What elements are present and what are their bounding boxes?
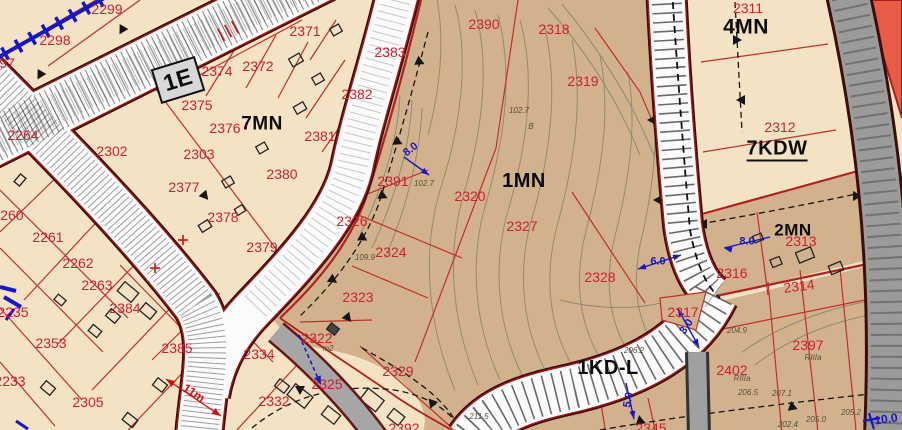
zone-label-0-1e: 1E xyxy=(161,65,196,96)
zone-label-4-7kdw: 7KDW xyxy=(747,139,808,162)
parcel-number-17-2379: 2379 xyxy=(246,240,277,254)
parcel-number-8-2374: 2374 xyxy=(201,64,232,78)
elevation-label-6-207-1: 207.1 xyxy=(772,390,792,398)
parcel-number-38-2326: 2326 xyxy=(336,214,367,228)
elevation-label-14-m2: m2 xyxy=(322,345,333,353)
blue-dimension-2-6-0: 6.0 xyxy=(650,257,665,268)
parcel-number-15-2377: 2377 xyxy=(168,180,199,194)
parcel-number-32-2385: 2385 xyxy=(161,341,192,355)
parcel-number-9-2383: 2383 xyxy=(374,45,405,59)
parcel-number-28-2353: 2353 xyxy=(35,336,66,350)
parcel-number-23-2260: 2260 xyxy=(0,208,24,222)
parcel-number-18-2390: 2390 xyxy=(468,17,499,31)
parcel-number-44-2325: 2325 xyxy=(311,377,342,391)
red-dimension-0-11m: 11m xyxy=(181,382,207,405)
zone-label-3-4mn: 4MN xyxy=(723,17,769,38)
elevation-label-4-211-5: 211.5 xyxy=(469,413,488,421)
parcel-number-37-2320: 2320 xyxy=(454,189,485,203)
parcel-number-40-2324: 2324 xyxy=(375,245,406,259)
parcel-number-34-2332: 2332 xyxy=(258,394,289,408)
blue-dimension-0-8-0: 8.0 xyxy=(402,141,421,159)
map-labels-layer: 1E7MN1MN4MN7KDW2MN1KD-L97229922982264230… xyxy=(0,0,902,430)
zoning-map: 1E7MN1MN4MN7KDW2MN1KD-L97229922982264230… xyxy=(0,0,902,430)
elevation-label-9-202-4: 202.4 xyxy=(778,421,798,429)
parcel-number-27-2235: 2235 xyxy=(0,305,29,319)
zone-label-2-1mn: 1MN xyxy=(502,171,546,191)
parcel-number-25-2262: 2262 xyxy=(62,256,93,270)
parcel-number-46-2317: 2317 xyxy=(667,305,698,319)
elevation-label-10-206-2: 206.2 xyxy=(624,347,644,355)
elevation-label-12-riiia: RIIIa xyxy=(734,375,751,383)
elevation-label-2-b: B xyxy=(528,123,533,131)
parcel-number-45-2329: 2329 xyxy=(382,364,413,378)
parcel-number-33-2334: 2334 xyxy=(243,347,274,361)
parcel-number-7-2372: 2372 xyxy=(242,59,273,73)
elevation-label-1-102-7: 102.7 xyxy=(509,107,529,115)
blue-dimension-1-8-0: 8.0 xyxy=(739,237,754,248)
parcel-number-0-97: 97 xyxy=(0,56,15,70)
zone-label-6-1kd-l: 1KD-L xyxy=(577,358,638,378)
parcel-number-14-2376: 2376 xyxy=(209,121,240,135)
parcel-number-41-2328: 2328 xyxy=(584,270,615,284)
parcel-number-16-2378: 2378 xyxy=(207,210,238,224)
blue-dimension-4-5-0: 5.0 xyxy=(622,392,635,409)
elevation-label-3-109-9: 109.9 xyxy=(355,254,375,262)
parcel-number-5-2303: 2303 xyxy=(183,147,214,161)
elevation-label-7-205-0: 205.0 xyxy=(806,416,826,424)
blue-dimension-5-10-0: 10.0 xyxy=(874,411,899,426)
parcel-number-52-2345: 2345 xyxy=(635,421,666,430)
parcel-number-3-2264: 2264 xyxy=(7,128,38,142)
parcel-number-21-2311: 2311 xyxy=(733,1,763,15)
parcel-number-49-2314: 2314 xyxy=(783,277,816,295)
parcel-number-48-2313: 2313 xyxy=(785,234,816,248)
parcel-number-43-2322: 2322 xyxy=(301,331,332,345)
parcel-number-47-2316: 2316 xyxy=(716,266,747,280)
parcel-number-6-2371: 2371 xyxy=(289,24,320,38)
elevation-label-13-riiia: RIIIa xyxy=(805,354,822,362)
parcel-number-1-2299: 2299 xyxy=(91,2,122,16)
parcel-number-4-2302: 2302 xyxy=(96,144,127,158)
blue-dimension-3-3-0: 3.0 xyxy=(678,318,696,337)
parcel-number-2-2298: 2298 xyxy=(39,33,70,47)
parcel-number-13-2375: 2375 xyxy=(181,98,212,112)
parcel-number-19-2318: 2318 xyxy=(538,22,569,36)
parcel-number-26-2263: 2263 xyxy=(81,278,112,292)
parcel-number-39-2327: 2327 xyxy=(506,219,537,233)
parcel-number-50-2397: 2397 xyxy=(792,338,823,352)
parcel-number-20-2319: 2319 xyxy=(567,74,598,88)
elevation-label-8-205-2: 205.2 xyxy=(841,409,861,417)
elevation-label-0-102-7: 102.7 xyxy=(414,180,434,188)
elevation-label-5-206-5: 206.5 xyxy=(738,389,758,397)
parcel-number-29-2233: 2233 xyxy=(0,374,26,388)
parcel-number-36-2391: 2391 xyxy=(377,174,408,188)
parcel-number-31-2384: 2384 xyxy=(109,301,140,315)
parcel-number-11-2381: 2381 xyxy=(304,129,335,143)
parcel-number-42-2323: 2323 xyxy=(342,290,373,304)
parcel-number-30-2305: 2305 xyxy=(72,395,103,409)
parcel-number-35-2392: 2392 xyxy=(388,421,419,430)
parcel-number-24-2261: 2261 xyxy=(32,230,63,244)
parcel-number-10-2382: 2382 xyxy=(341,87,372,101)
parcel-number-22-2312: 2312 xyxy=(764,120,795,134)
elevation-label-11-204-9: 204.9 xyxy=(727,327,747,335)
zone-label-1-7mn: 7MN xyxy=(241,115,283,134)
parcel-number-12-2380: 2380 xyxy=(266,167,297,181)
